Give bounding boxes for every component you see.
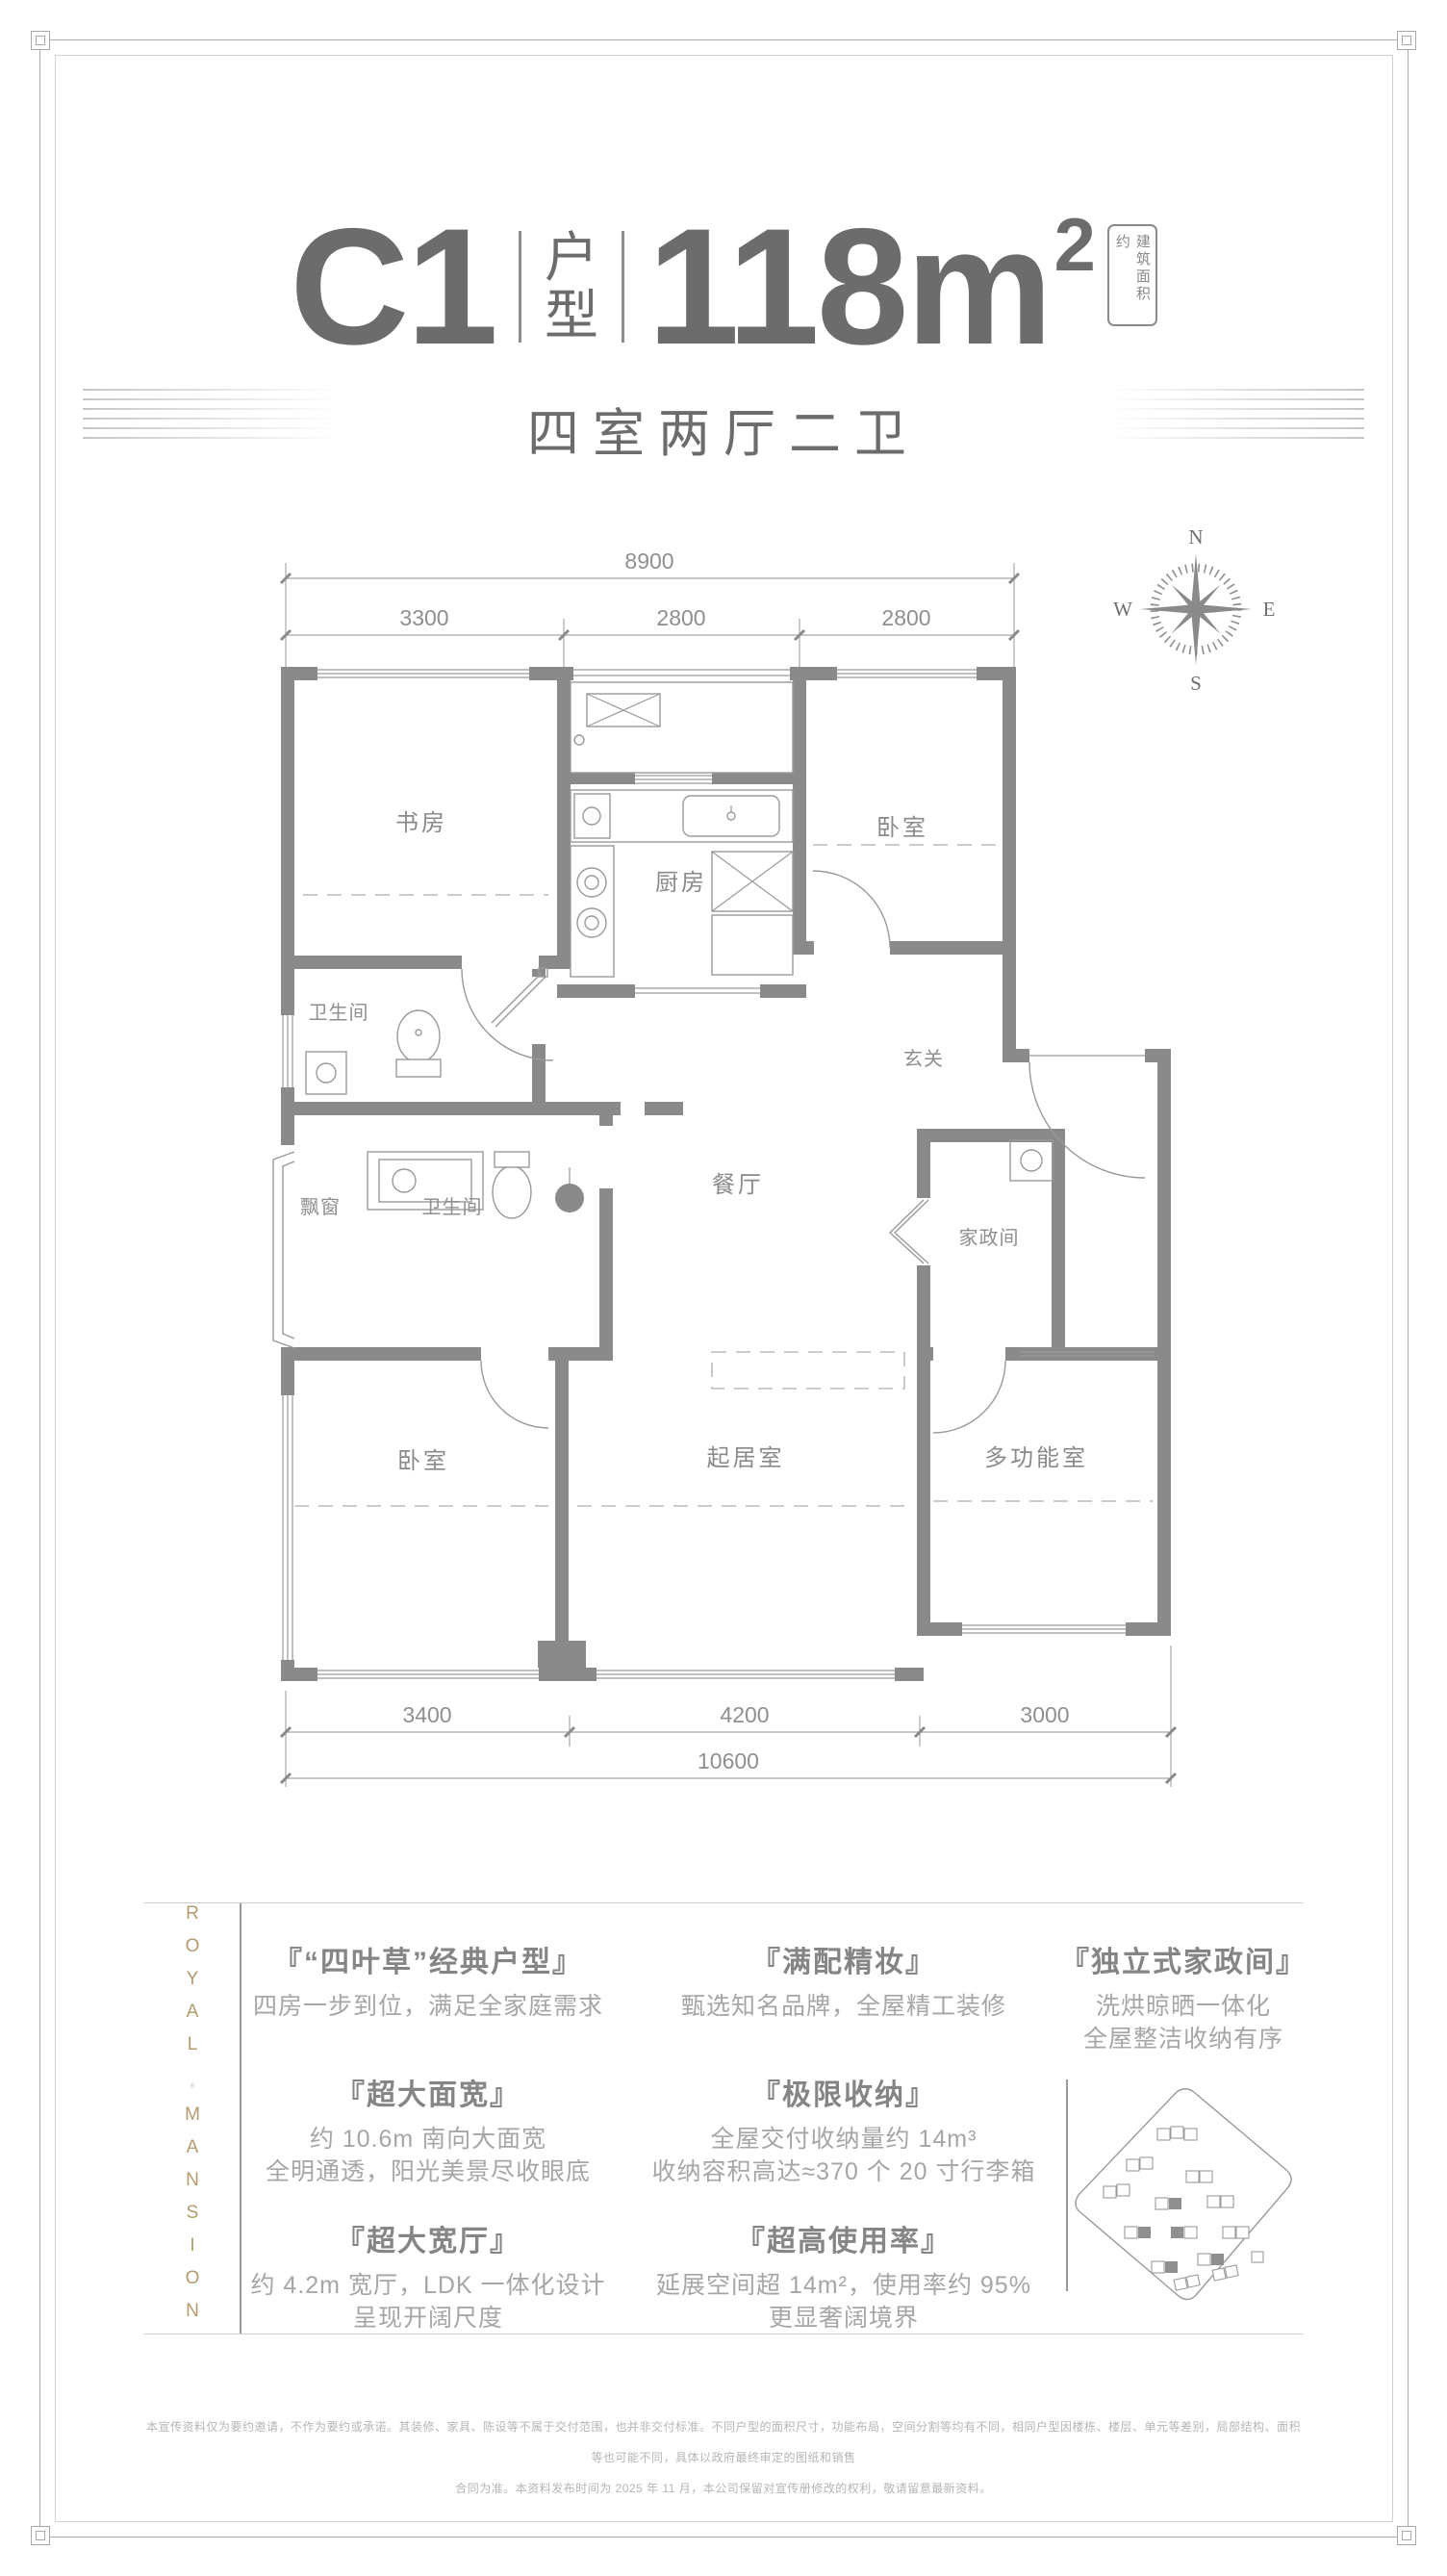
features-col1: 『“四叶草”经典户型』 四房一步到位，满足全家庭需求 『超大面宽』 约 10.6… [226,1903,630,2334]
dim-bottom-1: 3400 [402,1702,451,1727]
feature-title: 『“四叶草”经典户型』 [226,1938,630,1980]
room-study: 书房 [395,810,447,836]
room-multi: 多功能室 [984,1445,1088,1471]
feature-title: 『满配精妆』 [651,1938,1036,1980]
compass-w: W [1113,598,1132,621]
dimensions-bottom: 3400 4200 3000 10600 [281,1645,1176,1787]
brand-emblem-icon [166,2082,218,2089]
feature-line: 呈现开阔尺度 [226,2302,630,2334]
features-col2: 『满配精妆』 甄选知名品牌，全屋精工装修 『极限收纳』 全屋交付收纳量约 14m… [651,1903,1036,2334]
decor-stripe-right [1083,389,1364,445]
decor-stripe-left [83,389,364,445]
area-value: 118m [647,204,1050,370]
dim-top-3: 2800 [881,605,930,630]
dim-top-2: 2800 [656,605,705,630]
compass-rose: N E S W [1113,525,1275,695]
feature-title: 『超大面宽』 [226,2071,630,2113]
compass-n: N [1188,525,1203,548]
feature-title: 『超大宽厅』 [226,2217,630,2259]
compass-s: S [1190,672,1202,695]
feature-line: 更显奢阔境界 [651,2302,1036,2334]
title-divider [519,231,521,343]
title-divider [622,231,624,343]
room-housekeeping: 家政间 [959,1227,1020,1249]
disclaimer-line-2: 合同为准。本资料发布时间为 2025 年 11 月，本公司保留对宣传册修改的权利… [146,2473,1301,2504]
title-block: C1 户 型 118m 2 建筑面积约 [0,204,1447,370]
brand-mansion: MANSION [182,2104,203,2334]
feature-line: 延展空间超 14m²，使用率约 95% [651,2269,1036,2302]
unit-code: C1 [290,204,495,370]
feature-line: 甄选知名品牌，全屋精工装修 [651,1990,1036,2023]
feature-line: 约 4.2m 宽厅，LDK 一体化设计 [226,2269,630,2302]
feature-line: 全屋交付收纳量约 14m³ [651,2123,1036,2155]
dim-bottom-2: 4200 [720,1702,769,1727]
room-kitchen: 厨房 [655,870,707,896]
feature-title: 『独立式家政间』 [1015,1938,1352,1980]
room-bath-top: 卫生间 [309,1002,369,1024]
room-living: 起居室 [707,1445,785,1471]
feature-line: 全屋整洁收纳有序 [1015,2023,1352,2055]
features-section: ROYAL MANSION 『“四叶草”经典户型』 四房一步到位，满足全家庭需求… [144,1902,1303,2334]
unit-type-label: 户 型 [545,229,598,345]
feature-title: 『极限收纳』 [651,2071,1036,2113]
corner-ornament [31,31,50,50]
feature-line: 洗烘晾晒一体化 [1015,1990,1352,2023]
room-bedroom-main: 卧室 [397,1448,449,1474]
brand-royal: ROYAL [182,1903,203,2067]
corner-ornament [31,2526,50,2545]
feature-line: 收纳容积高达≈370 个 20 寸行李箱 [651,2155,1036,2188]
compass-e: E [1263,598,1276,621]
room-dining: 餐厅 [712,1172,764,1198]
disclaimer: 本宣传资料仅为要约邀请，不作为要约或承诺。其装修、家具、陈设等不属于交付范围，也… [146,2411,1301,2504]
feature-title: 『超高使用率』 [651,2217,1036,2259]
corner-ornament [1397,2526,1416,2545]
area-note-tag: 建筑面积约 [1107,224,1157,326]
room-bay-window: 飘窗 [300,1196,341,1218]
dim-overall-top: 8900 [624,548,673,574]
feature-line: 四房一步到位，满足全家庭需求 [226,1990,630,2023]
dim-top-1: 3300 [399,605,448,630]
feature-line: 约 10.6m 南向大面宽 [226,2123,630,2155]
corner-ornament [1397,31,1416,50]
area-superscript: 2 [1054,207,1095,282]
disclaimer-line-1: 本宣传资料仅为要约邀请，不作为要约或承诺。其装修、家具、陈设等不属于交付范围，也… [146,2411,1301,2473]
room-bedroom-top: 卧室 [876,815,928,841]
feature-line: 全明通透，阳光美景尽收眼底 [226,2155,630,2188]
dim-bottom-3: 3000 [1020,1702,1069,1727]
room-entry: 玄关 [903,1048,944,1070]
dim-overall-bottom: 10600 [698,1748,759,1773]
site-plan-map [1015,2084,1352,2312]
room-bath-main: 卫生间 [422,1196,483,1218]
floor-plan: 8900 3300 2800 2800 N E S W [260,524,1289,1804]
features-col3: 『独立式家政间』 洗烘晾晒一体化 全屋整洁收纳有序 [1015,1903,1352,2334]
dimensions-top: 8900 3300 2800 2800 [281,548,1019,669]
